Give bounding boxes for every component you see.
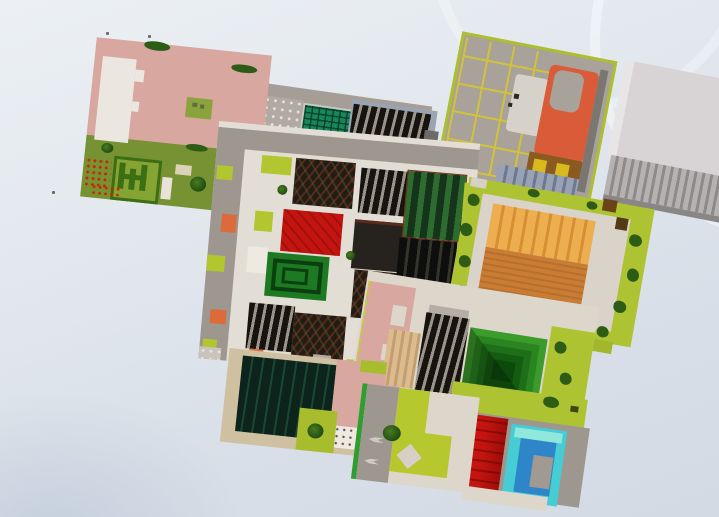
- plaza-path-step: [134, 69, 144, 82]
- green-maze-roof: [264, 252, 330, 301]
- road-patch-lime: [206, 255, 225, 273]
- depot-mark: [508, 102, 513, 107]
- road-end-pad: [198, 346, 221, 360]
- depot-mark: [513, 93, 519, 99]
- hedge-maze: [110, 156, 162, 205]
- maze-roof-ring: [281, 267, 308, 285]
- south-yard-plot: [350, 383, 480, 499]
- town-patch-white: [246, 246, 268, 274]
- green-row-field: [402, 170, 468, 243]
- map-viewport[interactable]: [0, 0, 719, 517]
- chevron-roof: [292, 158, 356, 209]
- town-patch-lime: [254, 211, 274, 232]
- town-patch-lime: [261, 155, 292, 176]
- plaza-path-step: [131, 101, 139, 112]
- lawn-tan-patch: [175, 164, 192, 176]
- road-patch-orange: [209, 309, 226, 324]
- red-roof: [280, 209, 343, 256]
- orchard-brown-box: [602, 198, 618, 212]
- floating-speck: [106, 32, 109, 35]
- field-grass-strip: [360, 360, 387, 375]
- court-mark: [570, 406, 579, 413]
- road-patch-lime: [216, 165, 233, 180]
- floating-speck: [148, 35, 151, 38]
- yard-walk: [425, 391, 458, 436]
- road-patch-orange: [221, 214, 238, 233]
- slat-roof: [245, 302, 295, 352]
- sky-corner-shade: [0, 380, 260, 517]
- orchard-dark-box: [615, 217, 629, 231]
- pavilion-mark: [200, 104, 204, 108]
- floating-speck: [52, 191, 55, 194]
- pavilion-mark: [192, 103, 197, 108]
